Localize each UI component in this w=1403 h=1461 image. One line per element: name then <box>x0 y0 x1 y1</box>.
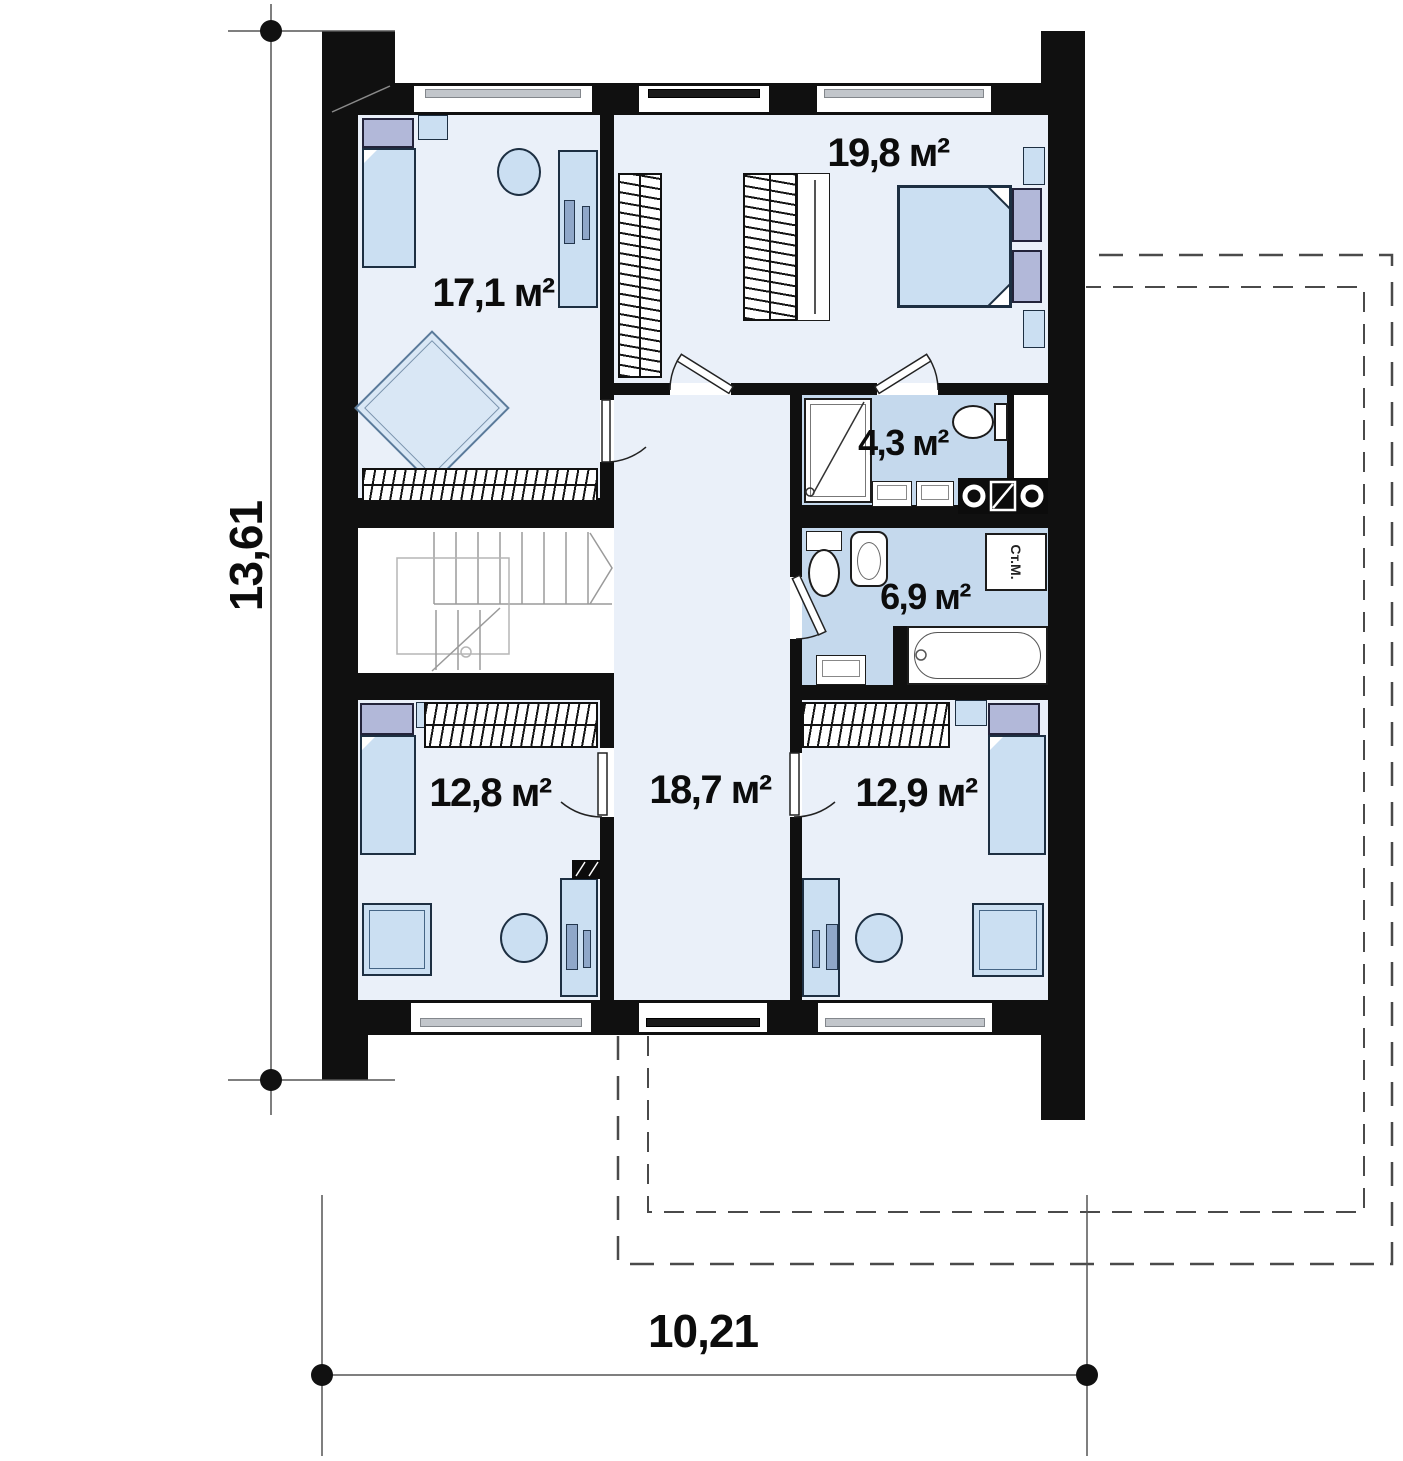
sink <box>916 481 954 507</box>
desk <box>558 150 598 308</box>
pillar-bottom-right <box>1041 1035 1085 1120</box>
desk-chair <box>497 148 541 196</box>
wall-left <box>322 83 358 1035</box>
wall-int-v2-a <box>790 395 802 577</box>
wardrobe <box>362 468 598 502</box>
area-label-bathroom-ensuite: 4,3 м² <box>858 425 948 461</box>
wardrobe-tall-1 <box>618 173 662 378</box>
bed-double <box>897 185 1012 308</box>
pillar-top-right <box>1041 31 1085 83</box>
wardrobe-mirror-door <box>797 173 830 321</box>
bed-pillow <box>1012 188 1042 242</box>
dimension-label-horizontal: 10,21 <box>648 1308 758 1354</box>
toilet-bowl <box>952 405 994 439</box>
washing-machine-label: Ст.М. <box>1008 544 1024 579</box>
bed-single <box>360 735 416 855</box>
toilet-tank <box>806 531 842 551</box>
floor-plan: Ст.М. <box>0 0 1403 1461</box>
radiator-top-2 <box>648 89 760 98</box>
wall-int-v1-lower <box>600 462 614 498</box>
area-label-bedroom-bottom-right: 12,9 м² <box>855 773 976 813</box>
area-label-bedroom-top-right: 19,8 м² <box>827 133 948 173</box>
room-stairwell <box>358 528 600 673</box>
wall-int-h2-a <box>614 383 670 395</box>
area-label-bedroom-bottom-left: 12,8 м² <box>429 773 550 813</box>
shelf-lower <box>1023 310 1045 348</box>
wall-int-v1-upper <box>600 115 614 400</box>
bed-pillow <box>360 703 414 735</box>
bathroom-niche <box>1014 395 1048 478</box>
bed-pillow <box>988 703 1040 735</box>
radiator-top-1 <box>425 89 581 98</box>
wall-niche-divider <box>1007 395 1014 478</box>
bed-pillow <box>362 118 414 148</box>
desk <box>560 878 598 997</box>
radiator-bottom-3 <box>825 1018 985 1027</box>
sink <box>816 655 866 685</box>
desk-chair <box>500 913 548 963</box>
toilet-tank <box>994 403 1008 441</box>
wardrobe-tall-2 <box>743 173 797 321</box>
wall-int-v3-lower <box>600 817 614 1000</box>
wall-int-h5 <box>790 685 1048 700</box>
bed-single <box>362 148 416 268</box>
sink <box>872 481 912 507</box>
desk <box>802 878 840 997</box>
wall-int-v2-c <box>790 817 802 1000</box>
wall-right <box>1048 83 1085 1035</box>
shelf-upper <box>1023 147 1045 185</box>
wall-int-h1 <box>358 498 614 528</box>
wall-tub-stub <box>893 626 907 685</box>
wall-int-h2-c <box>938 383 1048 395</box>
pillar-bottom-left <box>322 1035 368 1080</box>
bed-single <box>988 735 1046 855</box>
pillar-top-left <box>322 31 395 83</box>
dresser <box>362 903 432 976</box>
wardrobe <box>424 702 598 748</box>
bed-pillow <box>1012 250 1042 303</box>
ventilation-block <box>958 478 1048 514</box>
wall-int-h2-b <box>731 383 877 395</box>
wall-tv <box>572 860 600 879</box>
desk-chair <box>855 913 903 963</box>
area-label-hall: 18,7 м² <box>649 770 770 810</box>
dresser <box>972 903 1044 977</box>
room-hall <box>614 395 790 1000</box>
wall-int-h4 <box>358 673 614 700</box>
radiator-top-3 <box>824 89 984 98</box>
radiator-bottom-2 <box>646 1018 760 1027</box>
area-label-bedroom-top-left: 17,1 м² <box>432 273 553 313</box>
dimension-label-vertical: 13,61 <box>223 501 269 611</box>
wall-int-v3-upper <box>600 700 614 748</box>
nightstand <box>418 115 448 140</box>
nightstand <box>955 700 987 726</box>
bathtub <box>907 626 1048 685</box>
wardrobe <box>802 702 950 748</box>
area-label-bathroom-family: 6,9 м² <box>880 579 970 615</box>
toilet-bowl <box>808 549 840 597</box>
radiator-bottom-1 <box>420 1018 582 1027</box>
